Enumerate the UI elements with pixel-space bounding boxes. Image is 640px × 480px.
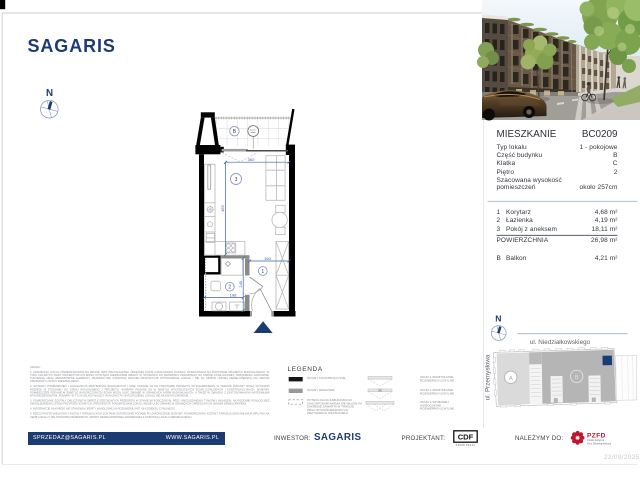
svg-text:4,21 m²: 4,21 m²	[250, 129, 257, 132]
svg-text:240: 240	[238, 280, 243, 287]
svg-text:3: 3	[235, 177, 238, 183]
svg-text:198: 198	[230, 292, 237, 297]
svg-text:1: 1	[261, 269, 264, 275]
svg-text:N: N	[495, 313, 501, 323]
svg-text:160: 160	[264, 256, 271, 261]
svg-text:CDF: CDF	[458, 433, 474, 442]
svg-text:A: A	[509, 376, 513, 382]
svg-text:2: 2	[228, 285, 231, 291]
svg-text:462: 462	[220, 204, 225, 211]
svg-text:N: N	[46, 88, 53, 99]
svg-text:ARCHITEKCI: ARCHITEKCI	[456, 444, 475, 447]
svg-text:360: 360	[248, 157, 255, 162]
svg-text:około: około	[251, 132, 256, 134]
svg-text:Firm Deweloperskich: Firm Deweloperskich	[587, 441, 612, 445]
svg-text:B: B	[575, 375, 579, 381]
